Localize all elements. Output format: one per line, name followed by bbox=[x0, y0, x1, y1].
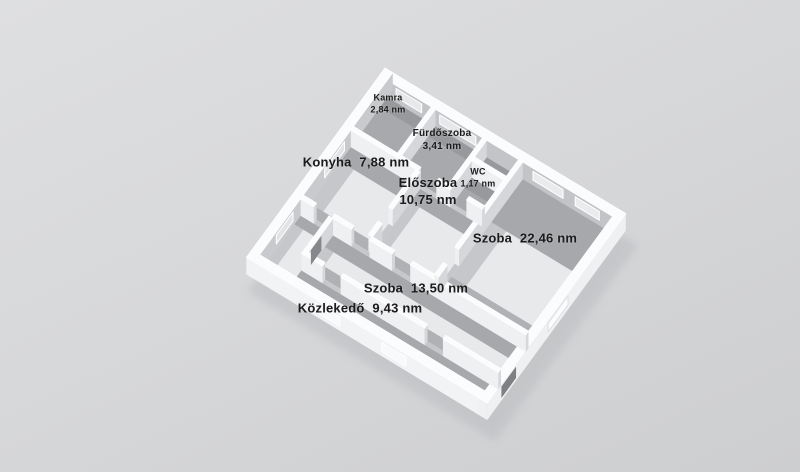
room-name: Kamra bbox=[371, 92, 406, 104]
room-name: WC bbox=[461, 166, 496, 178]
room-area: 13,50 nm bbox=[411, 281, 468, 296]
room-label-furdoszoba: Fürdőszoba 3,41 nm bbox=[413, 127, 472, 153]
room-name: Konyha bbox=[303, 155, 352, 170]
room-label-konyha: Konyha 7,88 nm bbox=[303, 155, 410, 170]
room-label-szoba-kis: Szoba 13,50 nm bbox=[364, 281, 468, 296]
room-area: 2,84 nm bbox=[371, 104, 406, 116]
room-area: 22,46 nm bbox=[520, 231, 577, 246]
room-name: Előszoba bbox=[399, 175, 458, 192]
room-name: Közlekedő bbox=[298, 301, 365, 316]
room-area: 1,17 nm bbox=[461, 178, 496, 190]
room-label-kozlekedo: Közlekedő 9,43 nm bbox=[298, 301, 422, 316]
room-name: Szoba bbox=[364, 281, 403, 296]
room-area: 7,88 nm bbox=[359, 155, 409, 170]
room-label-kamra: Kamra 2,84 nm bbox=[371, 92, 406, 115]
room-label-wc: WC 1,17 nm bbox=[461, 166, 496, 189]
room-label-eloszoba: Előszoba 10,75 nm bbox=[399, 175, 458, 209]
wall-face bbox=[389, 207, 393, 227]
room-area: 3,41 nm bbox=[413, 140, 472, 153]
room-label-szoba-nagy: Szoba 22,46 nm bbox=[473, 231, 577, 246]
room-name: Fürdőszoba bbox=[413, 127, 472, 140]
floorplan-scene: Kamra 2,84 nm Fürdőszoba 3,41 nm WC 1,17… bbox=[0, 0, 800, 472]
floorplan-canvas bbox=[0, 0, 800, 472]
wall-face bbox=[455, 247, 459, 266]
room-area: 10,75 nm bbox=[399, 192, 458, 209]
room-name: Szoba bbox=[473, 231, 512, 246]
room-area: 9,43 nm bbox=[372, 301, 422, 316]
